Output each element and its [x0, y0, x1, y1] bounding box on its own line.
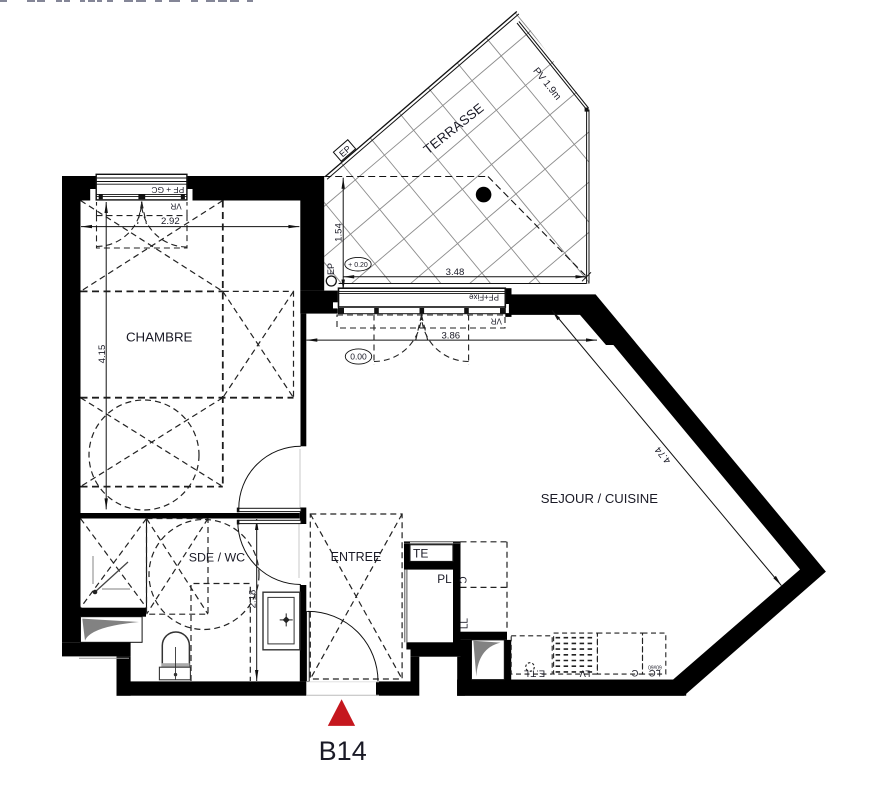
- svg-text:TERRASSE: TERRASSE: [421, 100, 487, 157]
- svg-text:B14: B14: [319, 736, 367, 766]
- svg-text:C: C: [457, 576, 468, 583]
- svg-text:SEJOUR / CUISINE: SEJOUR / CUISINE: [541, 491, 658, 506]
- svg-text:3.86: 3.86: [441, 330, 460, 341]
- svg-text:PF + GC: PF + GC: [151, 185, 184, 195]
- svg-text:LV: LV: [579, 669, 590, 679]
- svg-text:LL: LL: [459, 618, 470, 630]
- svg-text:1.54: 1.54: [333, 223, 344, 242]
- svg-text:2.92: 2.92: [161, 216, 180, 227]
- svg-text:PF+Fixe: PF+Fixe: [468, 293, 499, 302]
- svg-text:C: C: [631, 668, 638, 678]
- svg-text:0.00: 0.00: [350, 352, 367, 362]
- svg-text:VR: VR: [491, 316, 502, 325]
- svg-text:ENTREE: ENTREE: [331, 550, 382, 564]
- svg-text:4.74: 4.74: [653, 444, 674, 466]
- svg-text:60x60: 60x60: [648, 663, 662, 669]
- svg-text:EP: EP: [326, 263, 336, 275]
- svg-text:TE: TE: [413, 547, 428, 561]
- svg-text:VR: VR: [170, 202, 181, 211]
- svg-text:SDE / WC: SDE / WC: [189, 550, 245, 564]
- svg-text:+ 0.20: + 0.20: [348, 262, 368, 269]
- svg-text:E.T.L: E.T.L: [524, 669, 545, 679]
- svg-text:4.15: 4.15: [97, 345, 108, 364]
- svg-text:CHAMBRE: CHAMBRE: [126, 330, 193, 345]
- svg-text:3.48: 3.48: [446, 267, 465, 278]
- svg-text:PL: PL: [437, 572, 452, 586]
